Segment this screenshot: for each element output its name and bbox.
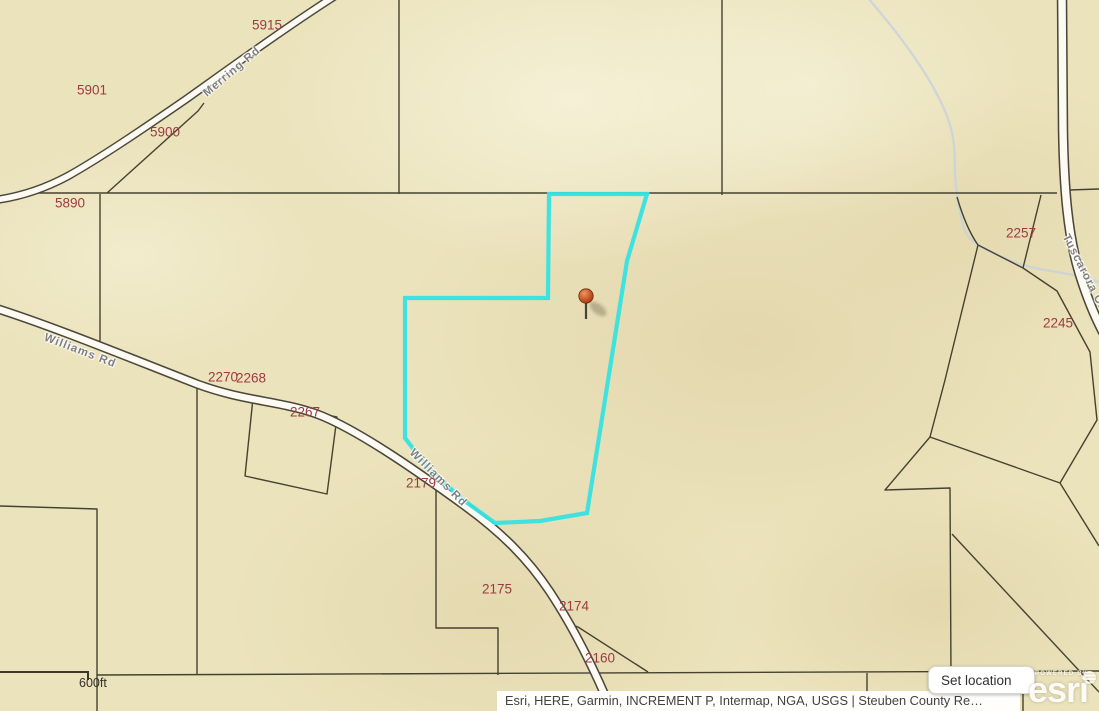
highlighted-parcel-outline[interactable]: [405, 194, 647, 523]
scale-bar-label: 600ft: [79, 676, 107, 690]
esri-brand-text: esri: [1028, 669, 1088, 711]
scale-bar-line: [0, 671, 89, 673]
road-merring: [0, 0, 335, 200]
road-tuscarora: [1062, 0, 1099, 332]
parcel-boundaries: [0, 0, 1099, 711]
set-location-button[interactable]: Set location: [928, 666, 1035, 694]
location-pin[interactable]: [579, 289, 609, 319]
map-viewport[interactable]: Merring RdWilliams RdWilliams RdTuscaror…: [0, 0, 1099, 711]
pin-head: [579, 289, 593, 303]
esri-globe-icon: [1083, 671, 1096, 684]
map-attribution: Esri, HERE, Garmin, INCREMENT P, Interma…: [497, 691, 1020, 711]
esri-logo: POWERED BY esri: [1028, 668, 1099, 711]
